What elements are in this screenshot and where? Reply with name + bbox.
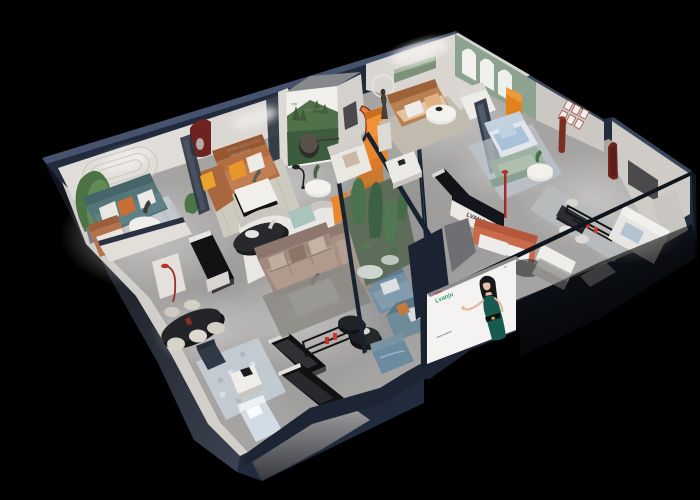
svg-text:mgu: mgu	[291, 102, 298, 106]
